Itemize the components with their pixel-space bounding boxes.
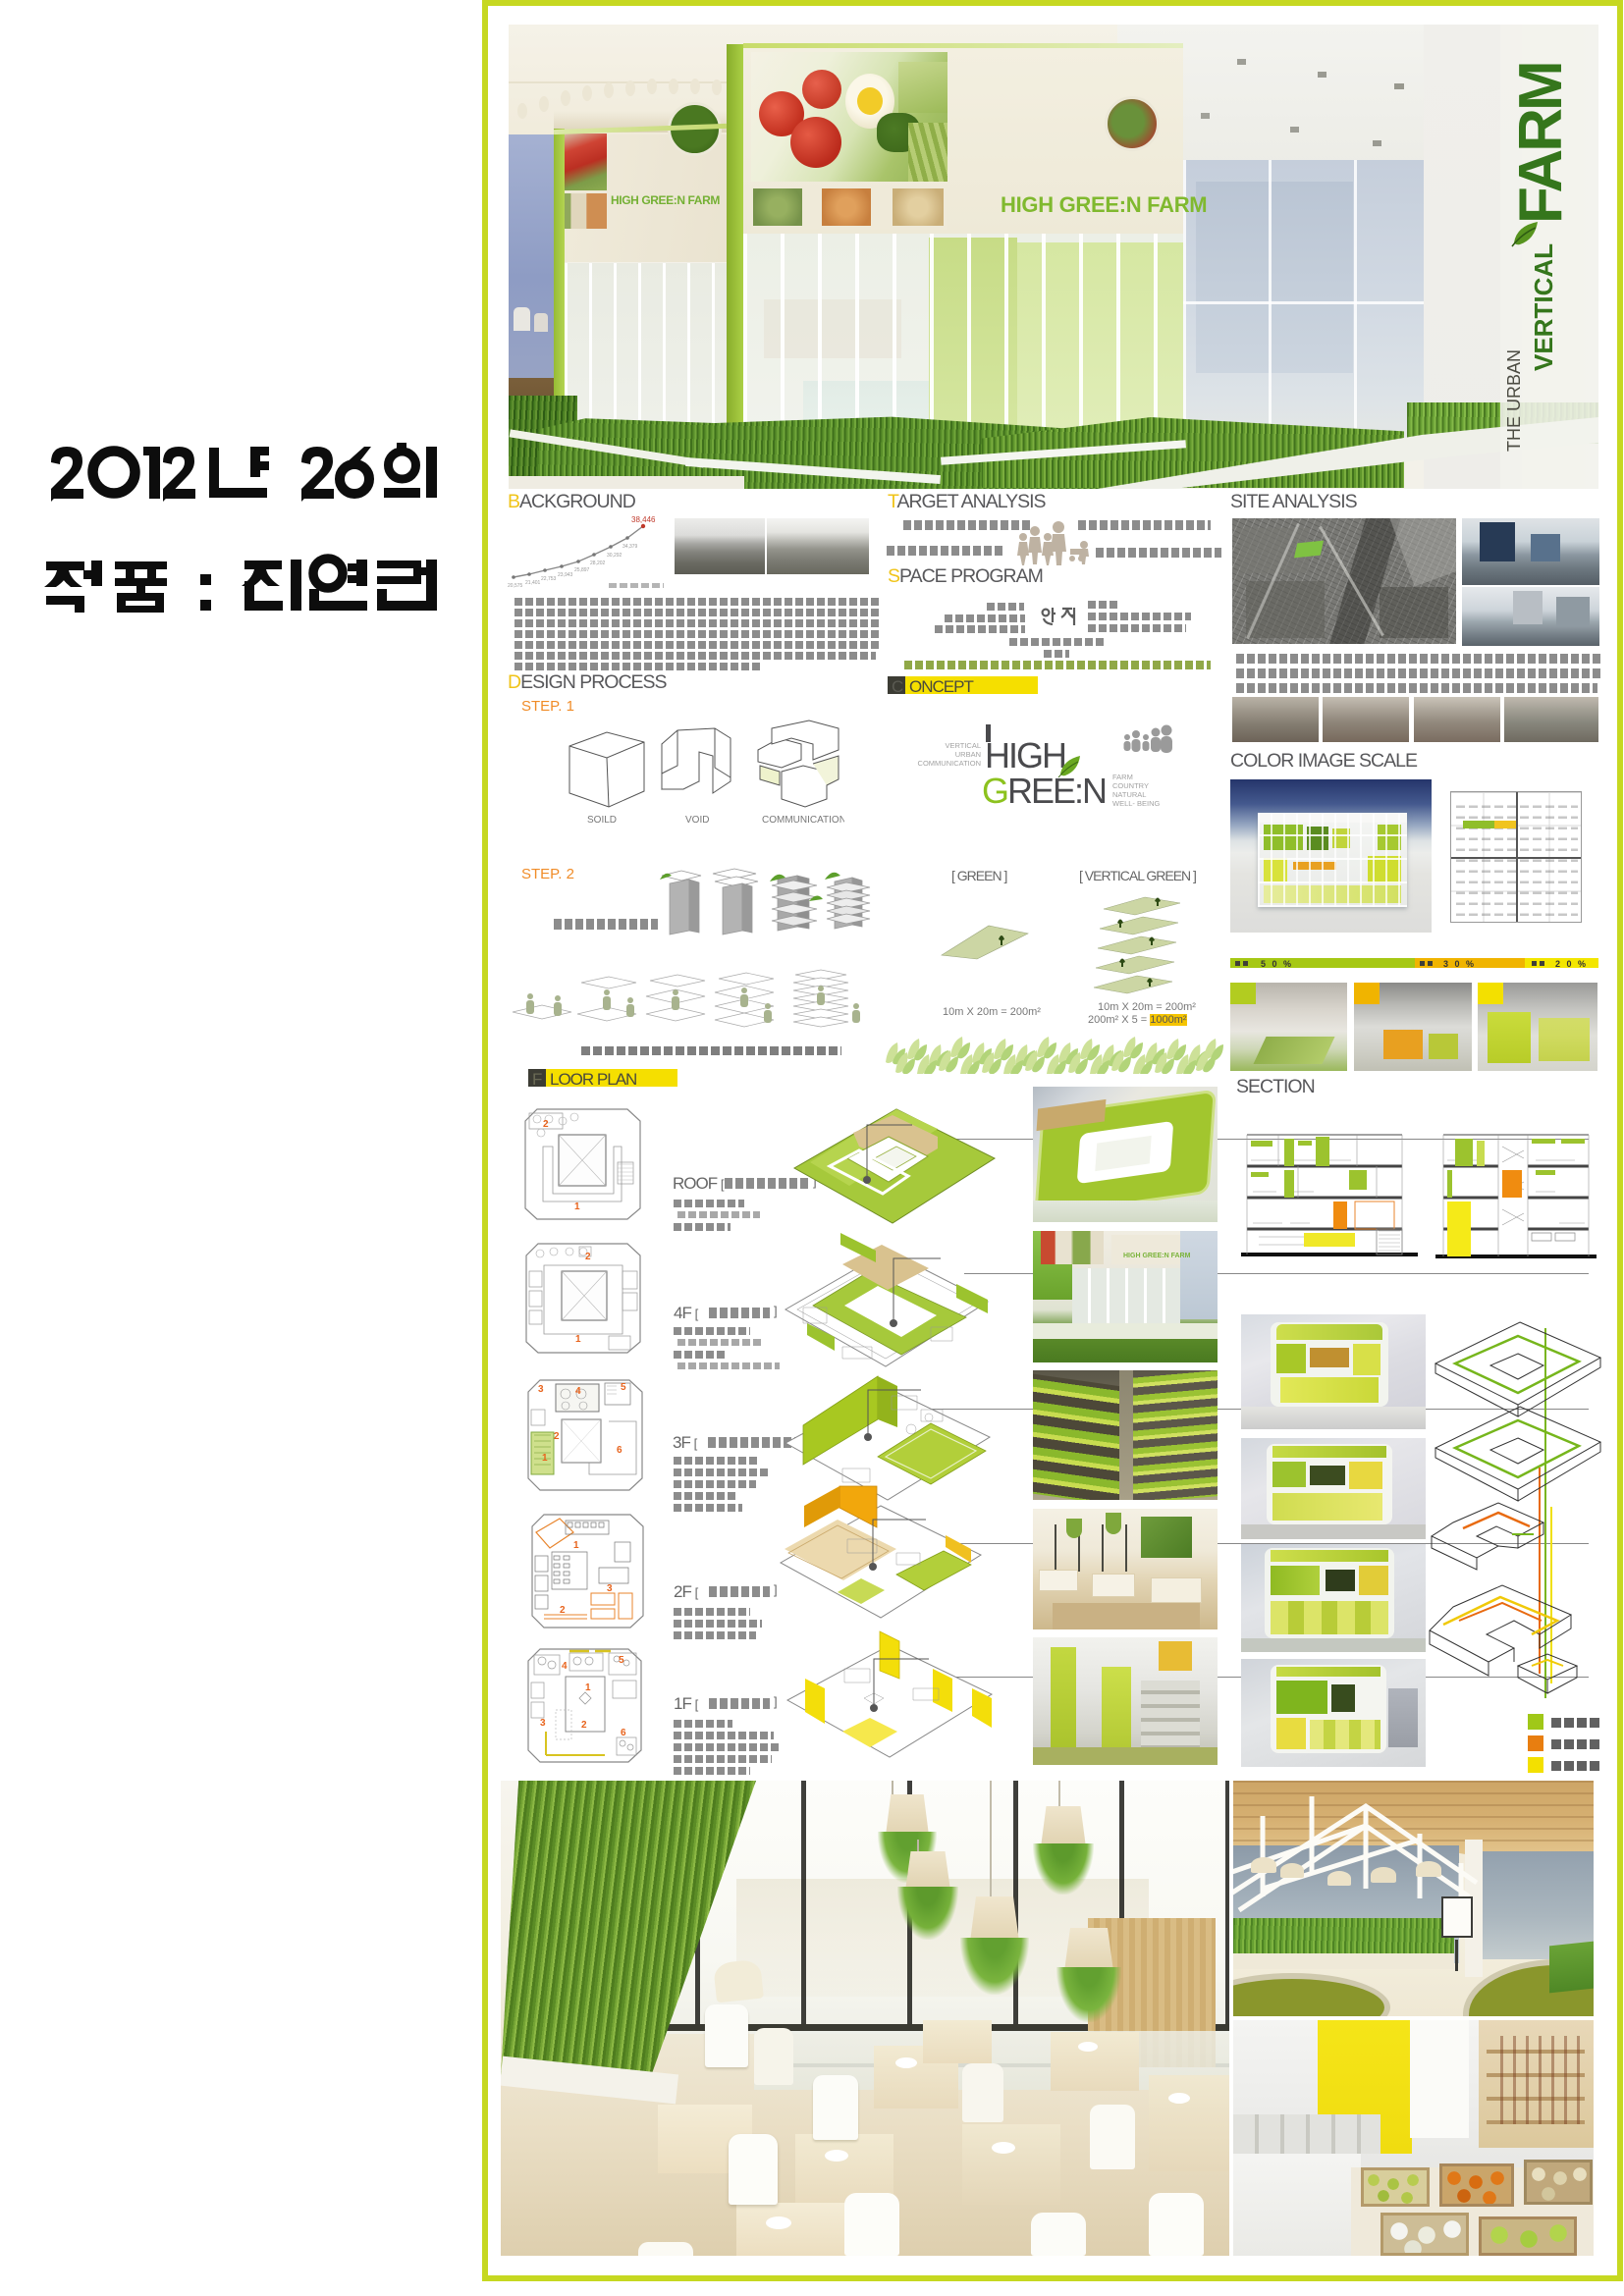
svg-text:5: 5 [621, 1382, 626, 1393]
svg-text:COUNTRY: COUNTRY [1112, 781, 1149, 790]
svg-text:VOID: VOID [685, 815, 709, 826]
svg-text:20,575: 20,575 [508, 583, 523, 589]
svg-text:6: 6 [621, 1728, 626, 1738]
svg-text:23,943: 23,943 [558, 572, 573, 578]
svg-text:21,401: 21,401 [525, 580, 541, 586]
svg-text:6: 6 [617, 1445, 623, 1456]
svg-text:4: 4 [562, 1661, 568, 1672]
svg-text:VERTICAL: VERTICAL [1529, 243, 1558, 371]
svg-text:COMMUNICATION: COMMUNICATION [762, 815, 844, 826]
svg-text:WELL- BEING: WELL- BEING [1112, 799, 1161, 808]
svg-text:38,446: 38,446 [631, 515, 656, 524]
svg-text:1: 1 [585, 1682, 591, 1693]
svg-text:25,897: 25,897 [574, 567, 590, 573]
svg-text:30,292: 30,292 [607, 553, 623, 559]
svg-text:1: 1 [575, 1334, 581, 1345]
svg-text:5: 5 [619, 1655, 624, 1666]
svg-text:SOILD: SOILD [587, 815, 617, 826]
svg-text:GREE:N: GREE:N [982, 771, 1106, 811]
svg-text:HIGH: HIGH [985, 735, 1065, 775]
svg-text:1: 1 [573, 1540, 579, 1551]
svg-text:34,379: 34,379 [623, 544, 638, 550]
svg-text:22,753: 22,753 [541, 576, 557, 582]
svg-text:1: 1 [542, 1453, 548, 1464]
svg-text:FARM: FARM [1112, 773, 1133, 781]
svg-text:2: 2 [560, 1605, 566, 1616]
svg-text:2: 2 [543, 1119, 549, 1130]
svg-text:COMMUNICATION: COMMUNICATION [918, 759, 981, 768]
svg-text:FARM: FARM [1507, 63, 1575, 224]
svg-text:THE URBAN: THE URBAN [1504, 349, 1524, 452]
svg-text:3: 3 [540, 1718, 546, 1729]
svg-text:3: 3 [607, 1583, 613, 1594]
svg-text:VERTICAL: VERTICAL [945, 741, 981, 750]
svg-text:URBAN: URBAN [955, 750, 981, 759]
svg-text:2: 2 [581, 1720, 587, 1731]
svg-text:2: 2 [554, 1431, 560, 1442]
svg-text:28,202: 28,202 [590, 561, 606, 566]
svg-text:2: 2 [585, 1252, 591, 1262]
svg-text:4: 4 [575, 1386, 581, 1397]
svg-text:NATURAL: NATURAL [1112, 790, 1146, 799]
svg-text:1: 1 [574, 1201, 580, 1212]
svg-text:3: 3 [538, 1384, 544, 1395]
